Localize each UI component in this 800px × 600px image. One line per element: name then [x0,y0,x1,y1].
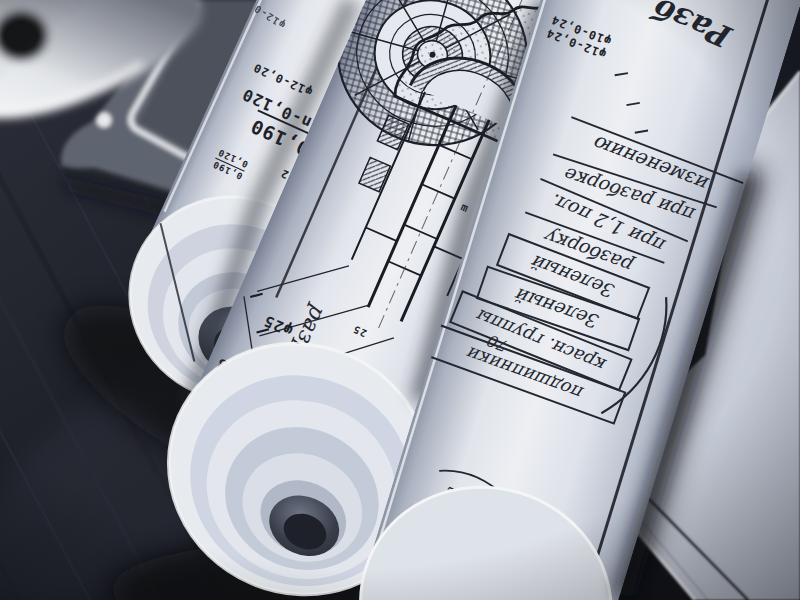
vignette [0,0,800,600]
photo-canvas: φ0,2 +0,2 max 0,190 min-0,120 φ12-0,20 φ… [0,0,800,600]
blueprints-photo: φ0,2 +0,2 max 0,190 min-0,120 φ12-0,20 φ… [0,0,800,600]
